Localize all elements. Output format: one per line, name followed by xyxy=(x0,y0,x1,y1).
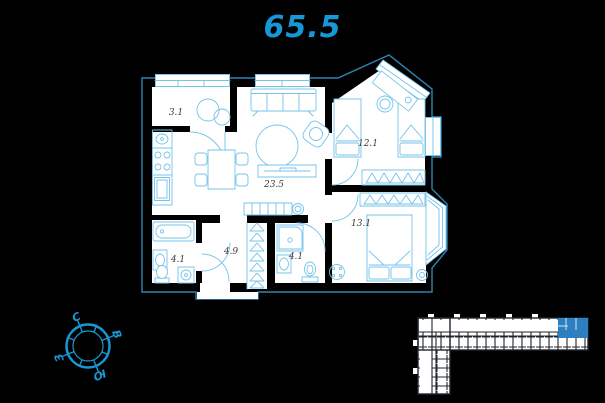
door-opening xyxy=(190,126,225,132)
chair xyxy=(195,174,207,186)
round-table xyxy=(197,99,219,121)
compass-icon: С В Ю З xyxy=(46,304,130,388)
room-area-label: 4.1 xyxy=(288,252,303,262)
room-area-label: 4.1 xyxy=(170,255,185,265)
sideboard-row xyxy=(244,203,304,215)
washing-machine xyxy=(178,267,194,283)
compass-west-label: З xyxy=(52,351,67,363)
door-opening xyxy=(196,243,202,271)
compass-south-label: Ю xyxy=(91,366,108,383)
total-area-value: 65.5 xyxy=(0,10,605,45)
window-top-center xyxy=(255,74,310,87)
wardrobe xyxy=(362,170,425,185)
entry-opening xyxy=(200,283,230,292)
room-area-label: 4.9 xyxy=(223,247,239,257)
room-area-label: 3.1 xyxy=(169,108,183,118)
shower xyxy=(277,225,303,251)
building-minimap xyxy=(410,310,595,400)
wardrobe xyxy=(360,193,425,206)
bed-single-left xyxy=(334,99,361,157)
toilet xyxy=(155,266,169,284)
tv-console xyxy=(258,165,316,177)
desk-chair xyxy=(377,96,393,112)
compass-north-label: С xyxy=(70,310,82,325)
room-area-label: 23.5 xyxy=(263,180,284,190)
door-opening xyxy=(308,215,325,223)
page-root: 65.5 xyxy=(0,0,605,403)
selected-unit-highlight xyxy=(558,318,588,338)
compass-east-label: В xyxy=(109,328,124,341)
floor-plan: 3.1 23.5 12.1 13.1 4.1 4.9 4.1 xyxy=(140,53,450,303)
room-area-label: 12.1 xyxy=(358,139,378,149)
window-top-left xyxy=(155,74,230,87)
entry-threshold xyxy=(197,292,258,299)
chair xyxy=(195,153,207,165)
bathtub xyxy=(153,222,194,241)
bed-double xyxy=(367,215,412,281)
door-opening xyxy=(325,195,332,223)
compass-ticks xyxy=(52,310,125,383)
chair xyxy=(236,174,248,186)
chair xyxy=(236,153,248,165)
window-right xyxy=(425,117,441,156)
room-area-label: 13.1 xyxy=(351,219,371,229)
passage-opening xyxy=(220,215,247,223)
